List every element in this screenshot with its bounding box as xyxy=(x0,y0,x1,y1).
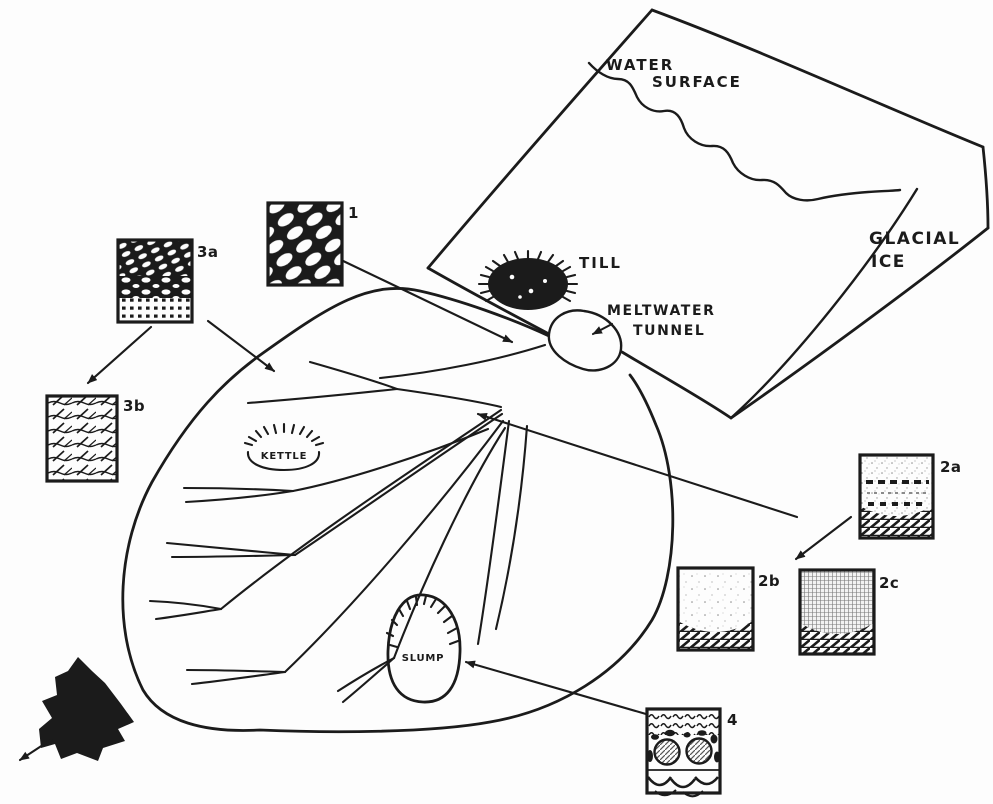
sample-box-3a-band-bottom xyxy=(118,298,192,322)
arrow-sample2a-to-fan-apex xyxy=(478,414,797,517)
sample-box-3b-label: 3b xyxy=(123,397,145,415)
sample-box-1: 1 xyxy=(268,203,359,285)
sample-box-3b: 3b xyxy=(47,396,145,481)
water-surface-label-1: WATER xyxy=(606,56,674,74)
till-dot xyxy=(510,275,515,280)
sample-box-1-label: 1 xyxy=(348,204,359,222)
sample-box-2a-label: 2a xyxy=(940,458,962,476)
slump-hachures xyxy=(387,596,458,647)
sample-box-2a: 2a xyxy=(860,455,962,538)
tunnel-mouth xyxy=(549,310,621,370)
till-blob xyxy=(488,258,568,310)
till-label: TILL xyxy=(579,254,622,272)
flow-indicator xyxy=(20,657,134,761)
ice-bottom-right-edge xyxy=(731,228,988,418)
glacial-ice-block: WATER SURFACE GLACIAL ICE xyxy=(428,10,988,418)
meltwater-tunnel-label-1: MELTWATER xyxy=(607,303,716,319)
sample-box-4-label: 4 xyxy=(727,711,738,729)
channel-line xyxy=(343,658,394,702)
sample-box-3b-pattern xyxy=(47,396,117,481)
sample-box-2b-label: 2b xyxy=(758,572,780,590)
channel-line xyxy=(187,670,285,672)
glacial-ice-label-2: ICE xyxy=(871,252,906,272)
sample-box-4-pebble xyxy=(684,733,691,738)
channel-line xyxy=(380,345,545,378)
water-surface-line xyxy=(589,63,900,200)
sample-box-4-clast xyxy=(655,740,680,765)
arrow-sample2a-to-2b2c xyxy=(796,517,851,559)
water-surface-label-2: SURFACE xyxy=(652,73,742,91)
sample-box-1-pattern xyxy=(268,203,342,285)
kettle: KETTLE xyxy=(245,424,323,470)
channel-line xyxy=(478,421,509,644)
sample-box-2c: 2c xyxy=(800,570,899,654)
sample-box-2c-upper-unit xyxy=(800,570,874,634)
flow-indicator-arrow xyxy=(20,739,52,760)
sample-box-3a-band-top xyxy=(118,240,192,276)
till-mound: TILL xyxy=(479,251,622,310)
slump-label: SLUMP xyxy=(402,653,445,664)
glacial-fan-diagram: WATER SURFACE GLACIAL ICE TILL xyxy=(0,0,993,804)
sample-box-3a-label: 3a xyxy=(197,243,219,261)
sample-box-4-pebble xyxy=(665,730,675,736)
sample-box-4-pebble xyxy=(698,730,707,736)
kettle-label: KETTLE xyxy=(261,451,307,462)
arrow-sample3a-to-3b xyxy=(88,327,151,383)
flow-indicator-blob xyxy=(39,657,134,761)
channel-line xyxy=(192,672,285,684)
channel-line xyxy=(186,491,293,502)
channel-line xyxy=(496,426,527,629)
till-dot xyxy=(529,289,534,294)
channel-line xyxy=(167,543,295,555)
sample-box-4-band-top xyxy=(647,709,720,735)
channel-line xyxy=(184,488,293,491)
sample-box-4-clast xyxy=(687,739,712,764)
diagram-canvas: WATER SURFACE GLACIAL ICE TILL xyxy=(0,0,993,804)
sample-box-2b-upper-unit xyxy=(678,568,753,632)
arrow-sample3a-to-fan xyxy=(208,321,274,371)
ice-left-edge xyxy=(428,10,652,268)
glacial-ice-label-1: GLACIAL xyxy=(869,229,960,249)
sample-box-2c-label: 2c xyxy=(879,574,899,592)
channel-line xyxy=(394,428,505,658)
till-dot xyxy=(518,295,522,299)
ice-right-corner-edge xyxy=(983,147,988,228)
sample-box-4-pebble xyxy=(711,735,718,744)
sample-box-2b: 2b xyxy=(678,568,780,650)
kettle-hachures xyxy=(245,424,323,445)
channel-line xyxy=(150,601,221,609)
meltwater-tunnel: MELTWATER TUNNEL xyxy=(549,303,716,370)
arrow-sample4-to-slump xyxy=(466,662,646,714)
channel-line xyxy=(310,362,397,389)
channel-line xyxy=(338,658,394,691)
sample-box-2a-upper-unit xyxy=(860,455,933,516)
channel-line xyxy=(397,389,501,407)
till-dot xyxy=(543,279,547,283)
channel-line xyxy=(156,609,221,619)
channel-line xyxy=(172,555,295,557)
sample-box-4: 4 xyxy=(647,709,738,796)
sample-box-3a: 3a xyxy=(118,240,219,322)
sample-box-3a-band-mid xyxy=(118,276,192,298)
channel-line xyxy=(248,389,397,403)
sample-box-4-pebble xyxy=(651,734,659,740)
meltwater-tunnel-label-2: TUNNEL xyxy=(633,323,705,339)
